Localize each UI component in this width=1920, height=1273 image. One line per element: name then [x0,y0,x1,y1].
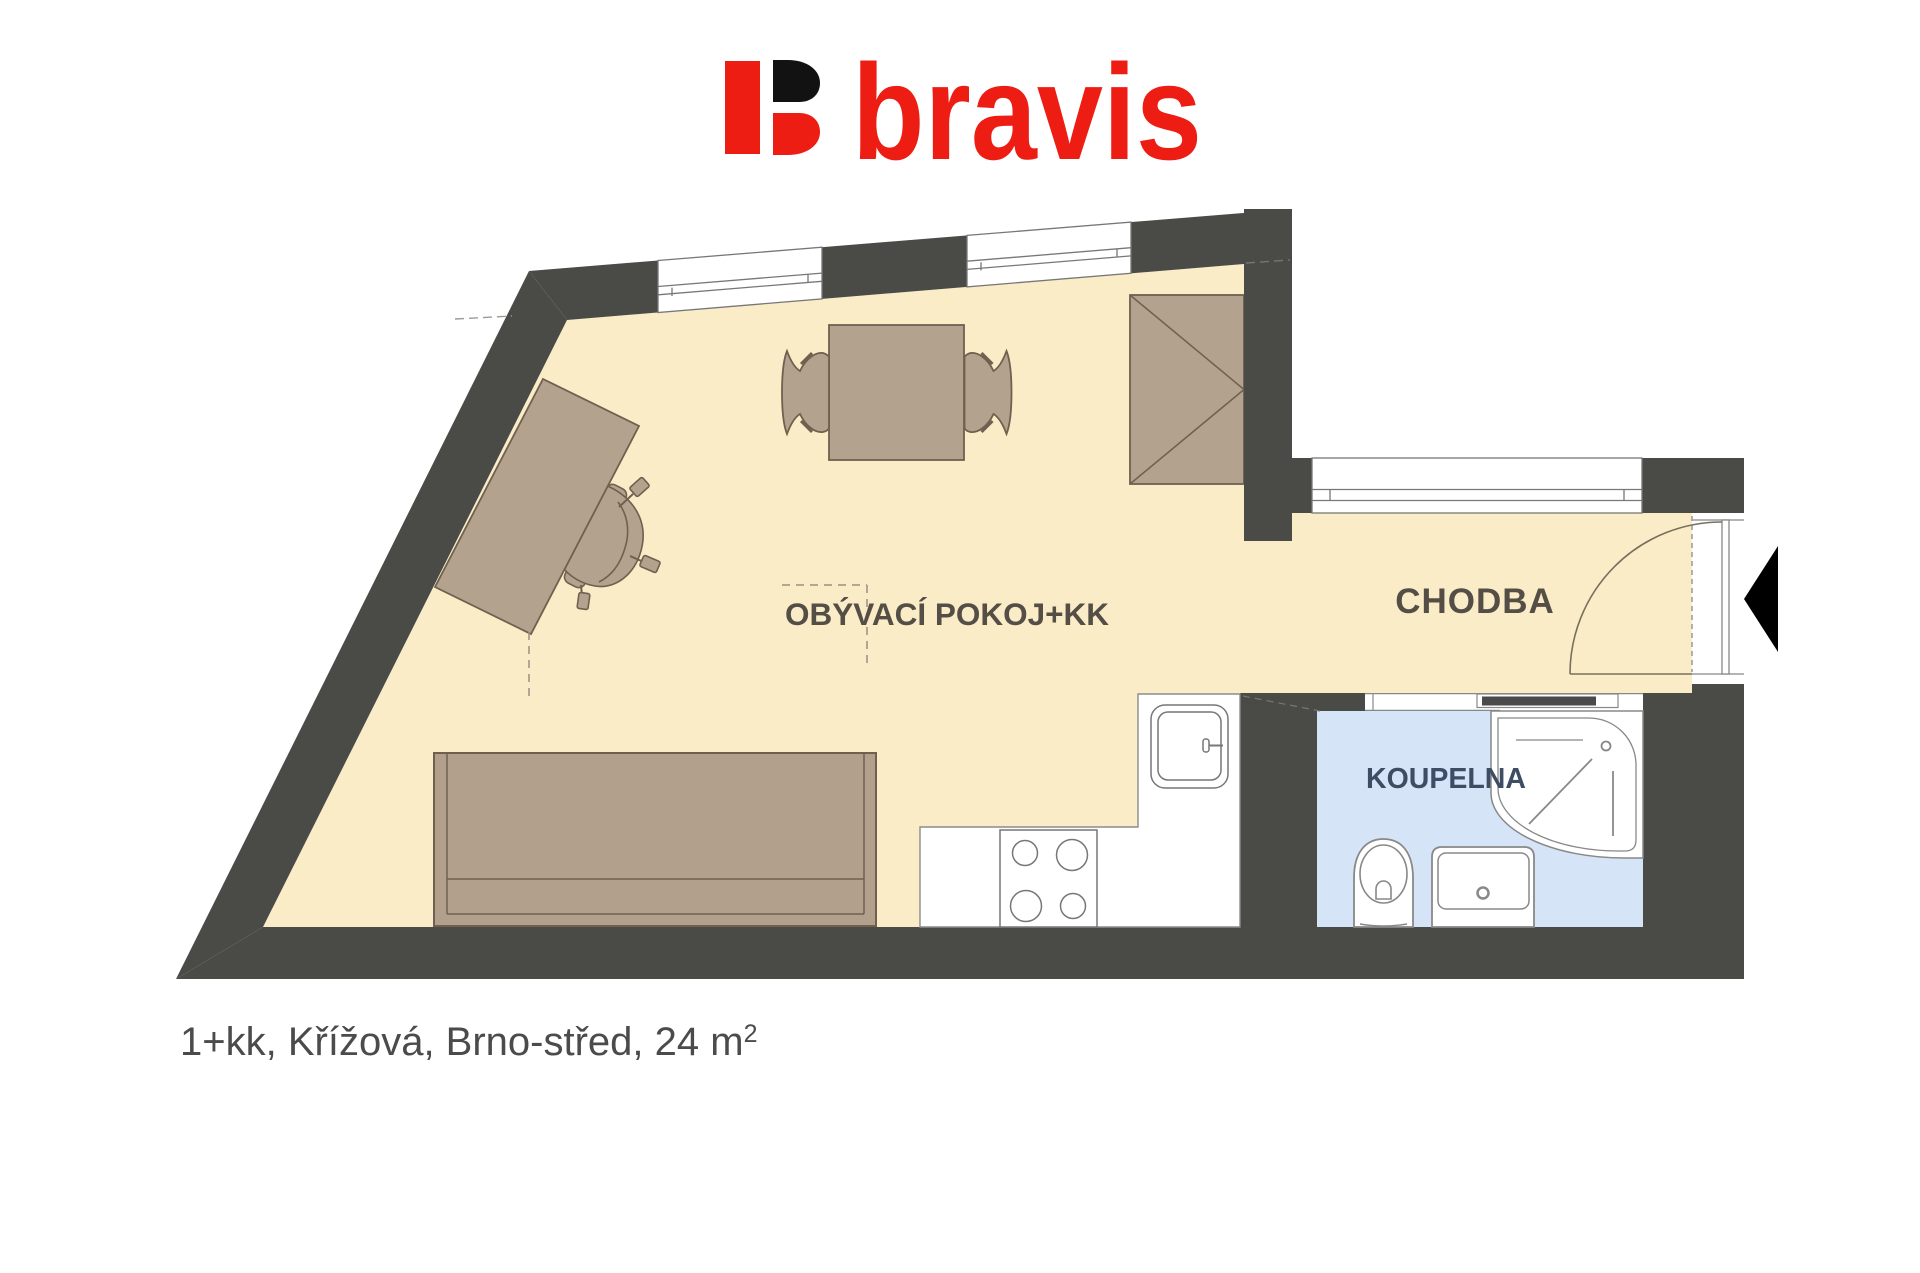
svg-text:KOUPELNA: KOUPELNA [1366,763,1526,795]
svg-text:CHODBA: CHODBA [1395,582,1555,621]
svg-text:1+kk, Křížová, Brno-střed, 24: 1+kk, Křížová, Brno-střed, 24 m2 [180,1020,757,1064]
svg-text:OBÝVACÍ POKOJ+KK: OBÝVACÍ POKOJ+KK [785,596,1109,632]
svg-text:bravis: bravis [852,36,1202,188]
